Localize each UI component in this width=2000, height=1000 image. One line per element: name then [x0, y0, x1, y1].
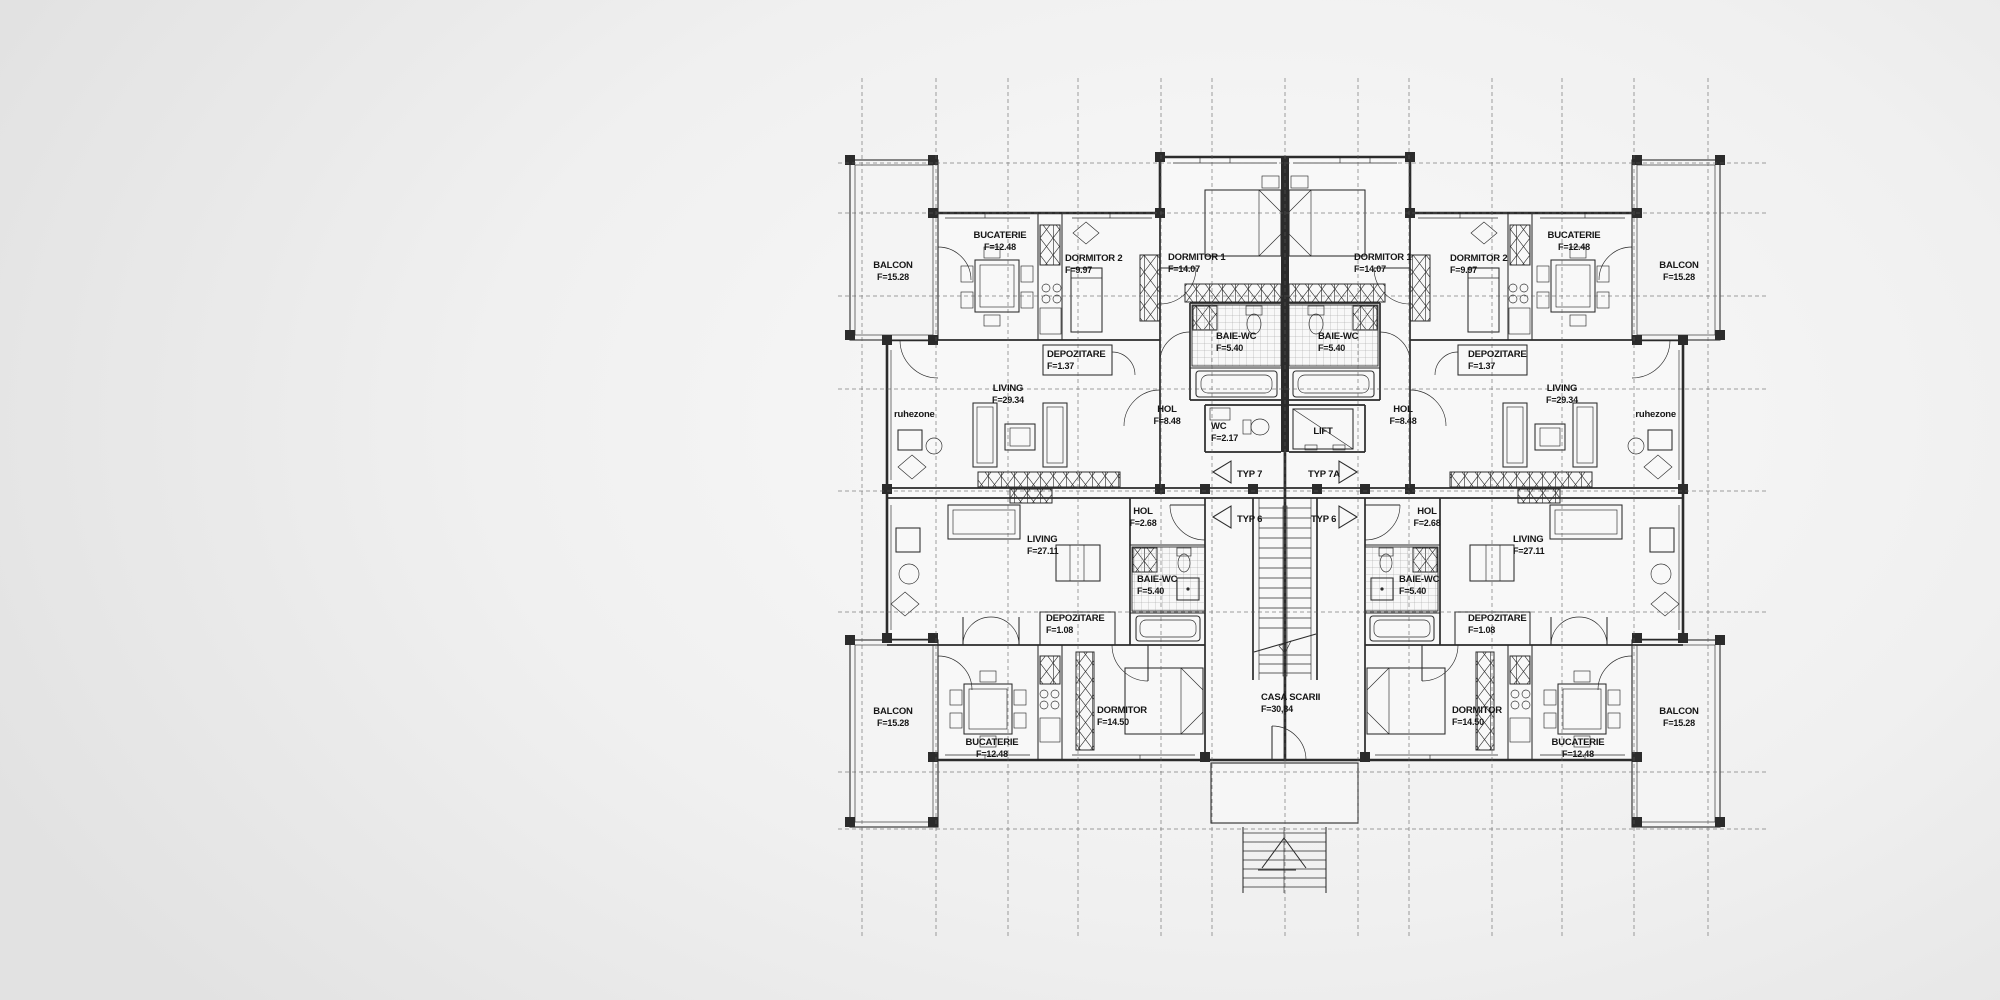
label-depozitare-bl: DEPOZITARE	[1046, 613, 1105, 624]
label-hol-tr: HOL	[1393, 404, 1413, 415]
label-balcon-tr: BALCON	[1659, 260, 1699, 271]
label-depozitare-br: DEPOZITARE	[1468, 613, 1527, 624]
label-hol-tl-area: F=8.48	[1153, 416, 1180, 426]
label-dormitor1-tr-area: F=14.07	[1354, 264, 1386, 274]
label-baie-wc-br-area: F=5.40	[1399, 586, 1426, 596]
label-depozitare-br-area: F=1.08	[1468, 625, 1495, 635]
label-baie-wc-tr: BAIE-WC	[1318, 331, 1359, 342]
label-lift: LIFT	[1313, 426, 1333, 437]
label-living-br-area: F=27.11	[1513, 546, 1545, 556]
label-hol-br: HOL	[1417, 506, 1437, 517]
label-living-br: LIVING	[1513, 534, 1543, 545]
label-typ7: TYP 7	[1237, 469, 1262, 480]
label-living-bl-area: F=27.11	[1027, 546, 1059, 556]
label-hol-bl-area: F=2.68	[1129, 518, 1156, 528]
label-dormitor-bl-area: F=14.50	[1097, 717, 1129, 727]
label-typ7a: TYP 7A	[1308, 469, 1340, 480]
label-depozitare-tr: DEPOZITARE	[1468, 349, 1527, 360]
label-wc-area: F=2.17	[1211, 433, 1238, 443]
label-dormitor2-tl-area: F=9.97	[1065, 265, 1092, 275]
label-baie-wc-tr-area: F=5.40	[1318, 343, 1345, 353]
label-living-tr-area: F=29.34	[1546, 395, 1578, 405]
label-baie-wc-tl: BAIE-WC	[1216, 331, 1257, 342]
label-bucaterie-tr-area: F=12.48	[1558, 242, 1590, 252]
label-balcon-tl-area: F=15.28	[877, 272, 909, 282]
label-living-tl: LIVING	[993, 383, 1023, 394]
label-ruhezone-r: ruhezone	[1635, 409, 1676, 420]
label-bucaterie-tl-area: F=12.48	[984, 242, 1016, 252]
label-ruhezone-l: ruhezone	[894, 409, 935, 420]
label-hol-bl: HOL	[1133, 506, 1153, 517]
label-balcon-bl-area: F=15.28	[877, 718, 909, 728]
label-bucaterie-tl: BUCATERIE	[974, 230, 1027, 241]
label-dormitor2-tl: DORMITOR 2	[1065, 253, 1122, 264]
label-baie-wc-bl: BAIE-WC	[1137, 574, 1178, 585]
label-balcon-tl: BALCON	[873, 260, 913, 271]
label-dormitor1-tr: DORMITOR 1	[1354, 252, 1412, 263]
label-bucaterie-bl-area: F=12.48	[976, 749, 1008, 759]
label-living-tr: LIVING	[1547, 383, 1577, 394]
label-balcon-br: BALCON	[1659, 706, 1699, 717]
label-casa-scarii-area: F=30,84	[1261, 704, 1293, 714]
label-hol-br-area: F=2.68	[1413, 518, 1440, 528]
label-baie-wc-tl-area: F=5.40	[1216, 343, 1243, 353]
label-baie-wc-br: BAIE-WC	[1399, 574, 1440, 585]
label-depozitare-tl-area: F=1.37	[1047, 361, 1074, 371]
floor-plan-drawing: BALCONF=15.28BUCATERIEF=12.48DORMITOR 2F…	[0, 0, 2000, 1000]
label-depozitare-tl: DEPOZITARE	[1047, 349, 1106, 360]
label-typ6-r: TYP 6	[1311, 514, 1336, 525]
label-dormitor-br: DORMITOR	[1452, 705, 1502, 716]
label-bucaterie-bl: BUCATERIE	[966, 737, 1019, 748]
label-living-bl: LIVING	[1027, 534, 1057, 545]
page-background: BALCONF=15.28BUCATERIEF=12.48DORMITOR 2F…	[0, 0, 2000, 1000]
label-dormitor2-tr-area: F=9.97	[1450, 265, 1477, 275]
label-typ6-l: TYP 6	[1237, 514, 1262, 525]
label-casa-scarii: CASA SCARII	[1261, 692, 1320, 703]
label-bucaterie-tr: BUCATERIE	[1548, 230, 1601, 241]
label-balcon-tr-area: F=15.28	[1663, 272, 1695, 282]
label-depozitare-bl-area: F=1.08	[1046, 625, 1073, 635]
label-bucaterie-br: BUCATERIE	[1552, 737, 1605, 748]
label-dormitor1-tl: DORMITOR 1	[1168, 252, 1226, 263]
label-wc: WC	[1211, 421, 1227, 432]
label-dormitor1-tl-area: F=14.07	[1168, 264, 1200, 274]
label-hol-tl: HOL	[1157, 404, 1177, 415]
label-depozitare-tr-area: F=1.37	[1468, 361, 1495, 371]
label-living-tl-area: F=29.34	[992, 395, 1024, 405]
label-dormitor-br-area: F=14.50	[1452, 717, 1484, 727]
label-balcon-bl: BALCON	[873, 706, 913, 717]
label-dormitor2-tr: DORMITOR 2	[1450, 253, 1507, 264]
label-dormitor-bl: DORMITOR	[1097, 705, 1147, 716]
label-bucaterie-br-area: F=12.48	[1562, 749, 1594, 759]
label-balcon-br-area: F=15.28	[1663, 718, 1695, 728]
label-hol-tr-area: F=8.48	[1389, 416, 1416, 426]
label-baie-wc-bl-area: F=5.40	[1137, 586, 1164, 596]
entrance-arrow	[1258, 838, 1306, 870]
